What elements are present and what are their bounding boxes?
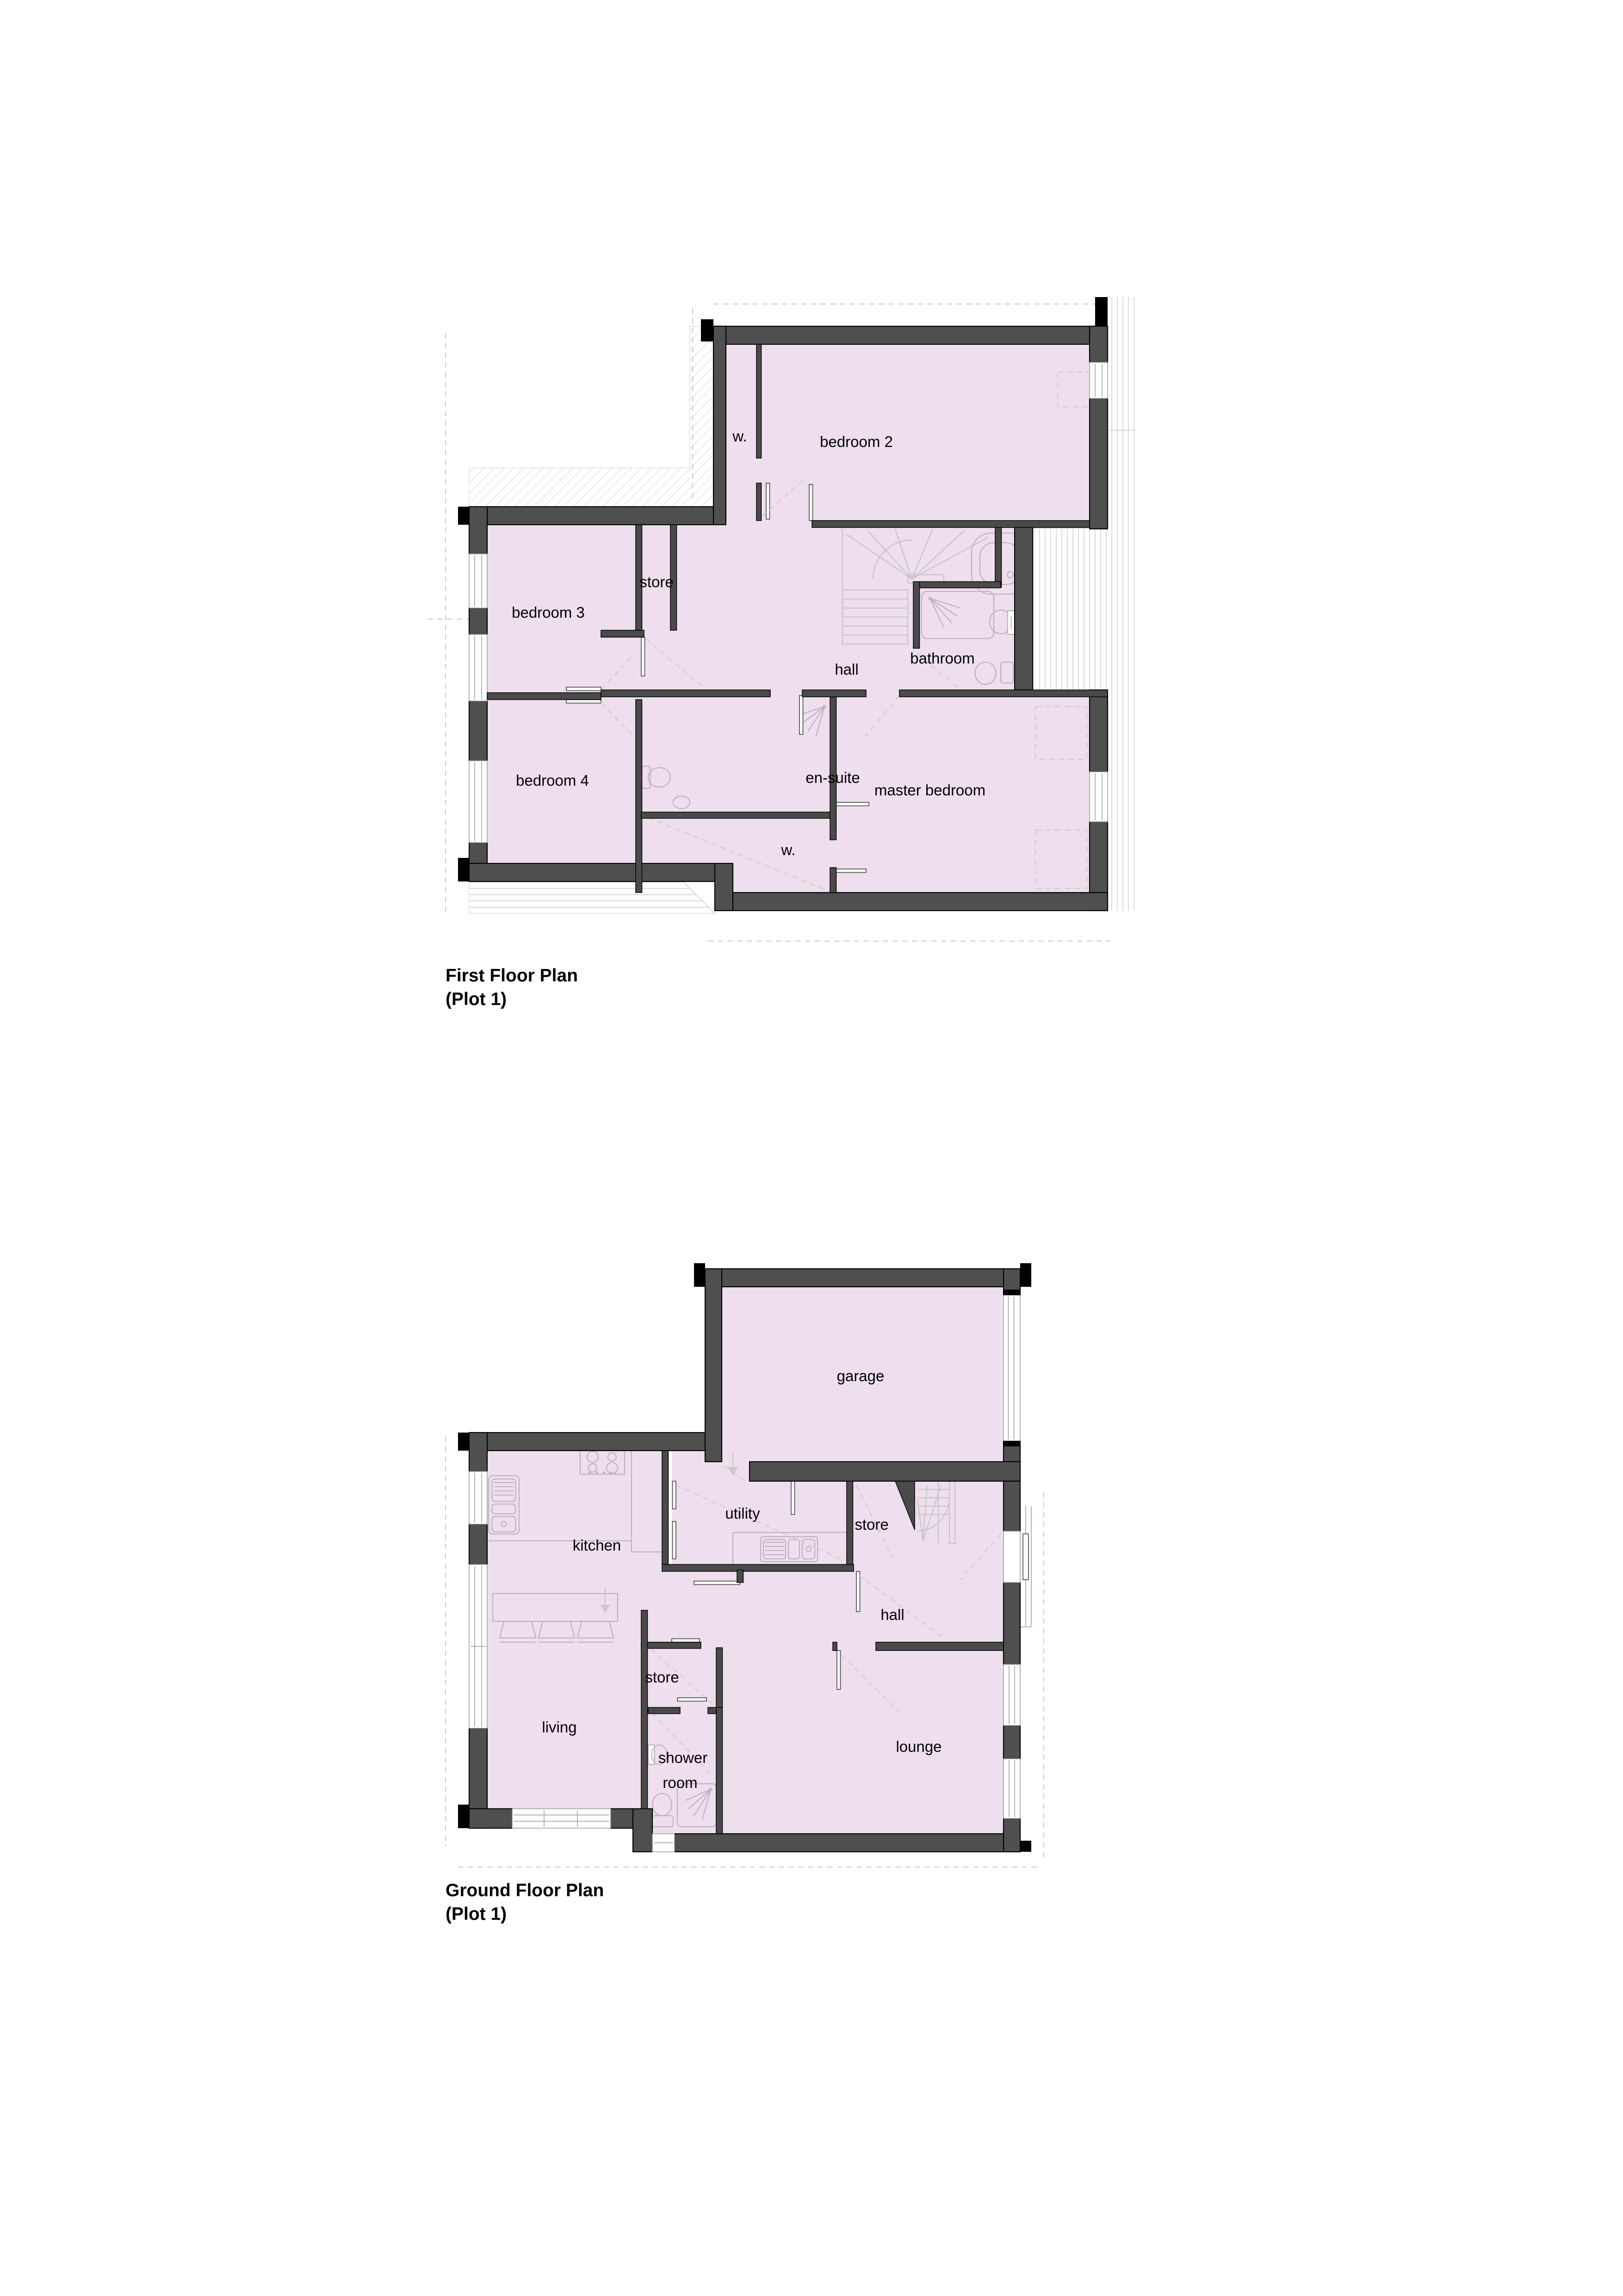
back-door [652,1834,675,1852]
wall [716,1648,723,1707]
store-lower-door-leaf [672,1639,700,1643]
wall [641,1642,701,1649]
wall [715,893,1108,911]
wall [737,1570,743,1582]
room-label-shower-line2: room [663,1774,697,1791]
floor-plan-page: w. bedroom 2 store hall bathroom bedroom… [0,0,1623,2296]
room-label-bedroom3: bedroom 3 [512,604,585,621]
first-floor-title-line2: (Plot 1) [446,989,507,1009]
wall [919,582,1001,588]
kitchen-door-leaf [673,1481,676,1509]
wardrobe-door-leaf [766,483,770,519]
room-label-bathroom: bathroom [910,650,974,667]
ground-floor-plan: garage utility kitchen store hall store … [446,1263,1044,1867]
wall [833,1642,837,1651]
room-label-shower-line1: shower [658,1749,707,1766]
room-label-master-bedroom: master bedroom [874,782,985,799]
wall [641,1610,648,1809]
wall [876,1642,1004,1651]
wall [469,608,487,634]
wall [648,1707,680,1714]
room-label-ensuite: en-suite [805,769,860,786]
wall [469,507,487,554]
wall [756,483,762,521]
ensuite-door-leaf [799,695,803,734]
store-door-leaf [641,637,645,676]
wall [469,1433,487,1471]
wall [830,868,836,893]
wall [847,1481,853,1564]
room-label-bedroom2: bedroom 2 [820,433,893,450]
room-label-utility: utility [725,1505,760,1522]
wall [705,1269,1020,1287]
roof-band-bathroom-notch [1033,529,1108,690]
bedroom3-door-leaf [566,687,601,691]
wall [1004,1481,1020,1531]
ground-floor-title-line1: Ground Floor Plan [446,1880,604,1900]
front-door-leaf [1023,1534,1028,1580]
living-bottom-window [512,1809,611,1828]
wall [913,582,920,648]
bedroom2-window [1090,362,1108,398]
wall [469,1809,512,1828]
first-floor-title-line1: First Floor Plan [446,966,578,986]
ground-floor-title-line2: (Plot 1) [446,1904,507,1924]
room-label-bedroom4: bedroom 4 [516,772,589,789]
wall [716,1707,723,1834]
front-door-opening [1004,1531,1020,1582]
wall [830,697,836,840]
wall [469,507,713,525]
wall [713,326,726,525]
bedroom2-door-leaf [809,484,813,521]
kitchen-window [469,1471,487,1524]
wall [1090,690,1108,772]
wall [1004,1818,1020,1852]
wall [1090,326,1108,362]
room-label-store-upper: store [855,1516,888,1533]
wall [469,1524,487,1564]
wall [1004,1582,1020,1664]
wall [715,863,733,911]
room-label-kitchen: kitchen [573,1537,621,1554]
wall [662,1451,669,1564]
corridor-floor [672,1451,722,1564]
room-label-hall: hall [880,1606,904,1623]
wall [750,1462,1020,1481]
wall [636,700,642,893]
wall [601,690,770,697]
floor-plans-canvas: w. bedroom 2 store hall bathroom bedroom… [0,0,1623,2296]
first-floor-plan: w. bedroom 2 store hall bathroom bedroom… [427,297,1135,941]
wall [469,863,715,881]
room-label-lounge: lounge [896,1738,942,1755]
wall [756,344,762,458]
wall [633,1809,652,1852]
wall [899,690,1108,697]
wall [1090,398,1108,529]
roof-band-right [1108,297,1135,911]
room-label-hall: hall [835,661,858,678]
wall [662,1564,854,1571]
utility-door-leaf [791,1481,795,1514]
wall [675,1834,1020,1852]
living-door-leaf [694,1581,740,1585]
wall [469,1433,705,1451]
kitchen-door-leaf [673,1521,676,1559]
room-label-store: store [639,573,673,590]
room-label-wardrobe-top: w. [732,428,747,445]
room-label-living: living [542,1719,576,1736]
wall [1015,525,1033,690]
wall [469,701,487,761]
wall [802,690,866,697]
garage-door [1004,1290,1020,1446]
room-label-store-lower: store [645,1669,679,1686]
master-bedroom-window [1090,772,1108,822]
bedroom4-window [469,761,487,843]
wall [601,630,644,637]
room-label-wardrobe-bottom: w. [781,841,795,858]
hall-door-leaf [856,1571,860,1612]
shower-room-door-leaf [677,1698,706,1701]
wall [705,1269,722,1462]
living-side-window [469,1564,487,1728]
wall [487,693,601,700]
wall [641,812,830,819]
wall [1004,1725,1020,1759]
room-label-garage: garage [837,1367,885,1384]
roof-hatch-bottom-left [469,881,715,913]
bedroom4-door-leaf [566,700,601,703]
wall [812,521,1090,527]
wall [995,527,1002,587]
wall [713,326,1108,344]
lounge-door-leaf [837,1651,841,1689]
master-bedroom-door-leaf [836,802,869,806]
roof-hatch-top-left [469,326,713,507]
wardrobe2-door-leaf [836,869,866,873]
